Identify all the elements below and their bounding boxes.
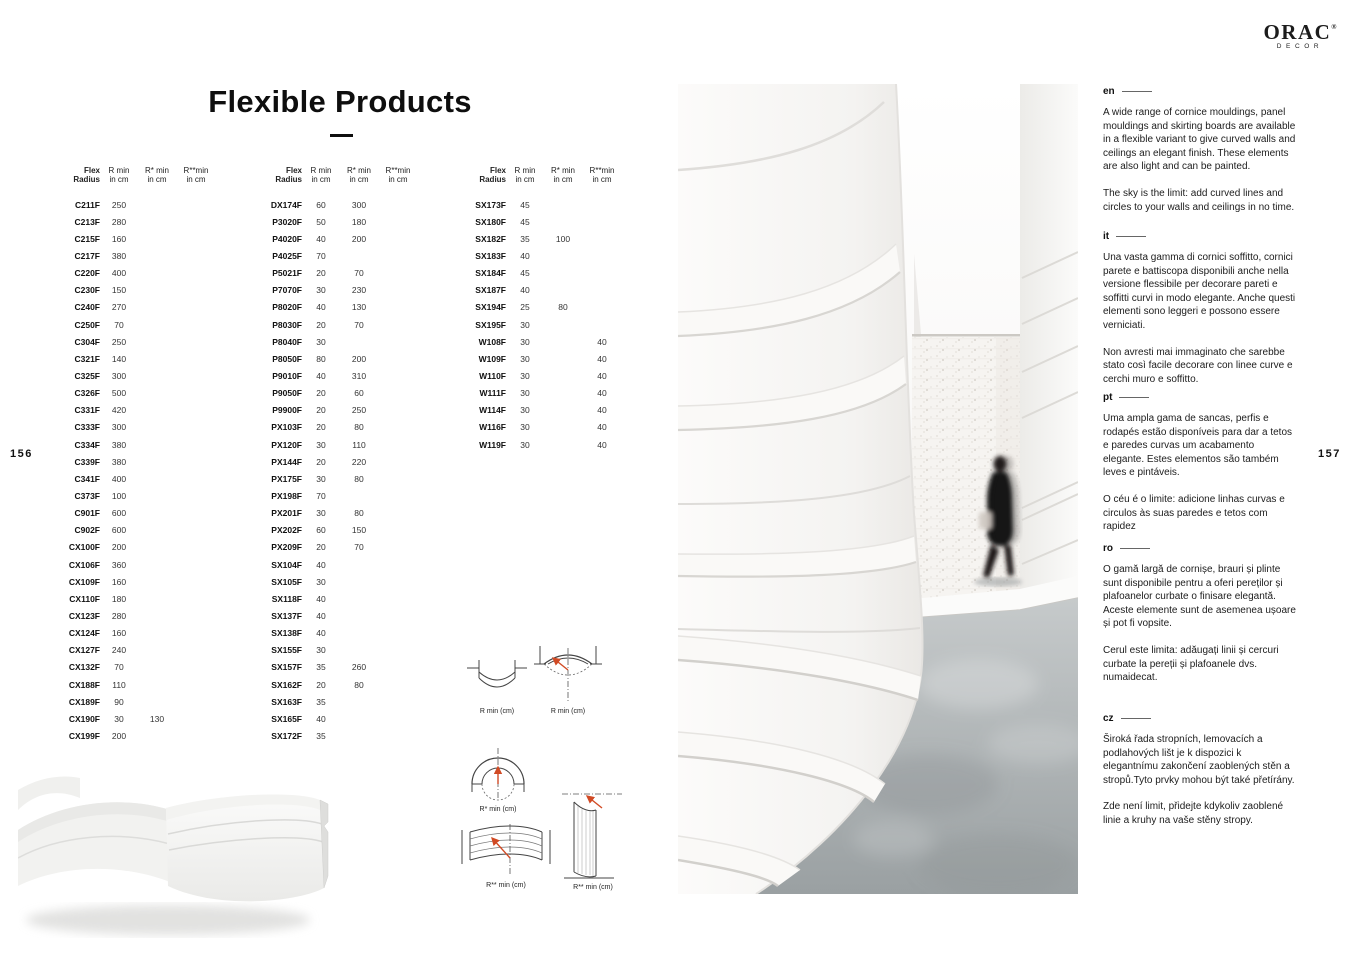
product-code: P8050F — [258, 354, 302, 364]
product-code: SX187F — [462, 285, 506, 295]
lang-code: cz — [1103, 713, 1114, 724]
diagram-r1-min-arch: R* min (cm) — [465, 740, 531, 813]
table-row: C325F300 — [56, 367, 216, 384]
radius-value: 40 — [582, 354, 622, 364]
product-code: CX124F — [56, 628, 100, 638]
flexible-skirting-render — [18, 768, 330, 956]
radius-value: 20 — [302, 268, 340, 278]
table-row: C215F160 — [56, 230, 216, 247]
table-row: SX182F35100 — [462, 230, 622, 247]
radius-value: 40 — [506, 285, 544, 295]
table-row: P8040F30 — [258, 333, 418, 350]
lang-code: pt — [1103, 392, 1112, 403]
table-row: SX183F40 — [462, 247, 622, 264]
radius-value: 40 — [302, 371, 340, 381]
table-row: C304F250 — [56, 333, 216, 350]
product-code: C334F — [56, 440, 100, 450]
table-row: SX184F45 — [462, 265, 622, 282]
radius-value: 200 — [100, 542, 138, 552]
lang-rule — [1121, 718, 1151, 719]
product-code: CX132F — [56, 662, 100, 672]
radius-value: 80 — [340, 474, 378, 484]
col-flex-radius: Flex Radius — [258, 166, 302, 184]
radius-value: 20 — [302, 680, 340, 690]
table-row: SX118F40 — [258, 590, 418, 607]
table-row: CX127F240 — [56, 642, 216, 659]
product-code: SX157F — [258, 662, 302, 672]
radius-value: 200 — [340, 234, 378, 244]
diagram-label: R** min (cm) — [558, 884, 628, 891]
radius-value: 300 — [100, 371, 138, 381]
table-row: CX190F30130 — [56, 710, 216, 727]
table-body: C211F250C213F280C215F160C217F380C220F400… — [56, 196, 216, 745]
product-code: C326F — [56, 388, 100, 398]
lang-paragraph: A wide range of cornice mouldings, panel… — [1103, 106, 1297, 174]
product-code: PX201F — [258, 508, 302, 518]
diagram-r-min-concave: R min (cm) — [462, 660, 532, 715]
radius-value: 40 — [582, 422, 622, 432]
col-r-min: R minin cm — [506, 166, 544, 184]
table-row: DX174F60300 — [258, 196, 418, 213]
product-code: C339F — [56, 457, 100, 467]
radius-value: 30 — [506, 405, 544, 415]
radius-value: 40 — [506, 251, 544, 261]
table-header: Flex Radius R minin cm R* minin cm R**mi… — [462, 166, 622, 196]
table-row: W108F3040 — [462, 333, 622, 350]
product-code: PX144F — [258, 457, 302, 467]
radius-value: 400 — [100, 474, 138, 484]
brand-logo: ORAC® DECOR — [1256, 16, 1344, 50]
table-row: C902F600 — [56, 522, 216, 539]
product-code: CX109F — [56, 577, 100, 587]
table-row: P9010F40310 — [258, 367, 418, 384]
radius-value: 40 — [582, 388, 622, 398]
product-code: CX127F — [56, 645, 100, 655]
radius-value: 35 — [302, 662, 340, 672]
product-code: PX209F — [258, 542, 302, 552]
table-row: P9900F20250 — [258, 402, 418, 419]
table-row: PX209F2070 — [258, 539, 418, 556]
product-code: SX118F — [258, 594, 302, 604]
lang-rule — [1122, 91, 1152, 92]
product-code: SX165F — [258, 714, 302, 724]
radius-value: 70 — [302, 491, 340, 501]
radius-value: 30 — [302, 474, 340, 484]
brand-sub: DECOR — [1256, 43, 1344, 50]
radius-value: 130 — [340, 302, 378, 312]
lang-section-en: en A wide range of cornice mouldings, pa… — [1103, 86, 1297, 227]
product-photo-flexible-skirting — [18, 768, 330, 956]
product-code: P9900F — [258, 405, 302, 415]
radius-value: 30 — [506, 440, 544, 450]
product-code: W116F — [462, 422, 506, 432]
radius-value: 200 — [340, 354, 378, 364]
diagram-label: R min (cm) — [532, 708, 604, 715]
radius-value: 30 — [100, 714, 138, 724]
radius-value: 30 — [302, 645, 340, 655]
table-row: SX195F30 — [462, 316, 622, 333]
table-row: C230F150 — [56, 282, 216, 299]
radius-value: 180 — [340, 217, 378, 227]
lang-rule — [1120, 548, 1150, 549]
lang-code: ro — [1103, 543, 1113, 554]
radius-value: 80 — [340, 508, 378, 518]
table-row: W114F3040 — [462, 402, 622, 419]
radius-value: 260 — [340, 662, 378, 672]
product-code: P9010F — [258, 371, 302, 381]
product-code: SX155F — [258, 645, 302, 655]
product-code: SX173F — [462, 200, 506, 210]
lang-paragraph: The sky is the limit: add curved lines a… — [1103, 187, 1297, 214]
diagram-label: R min (cm) — [462, 708, 532, 715]
col-r1-min: R* minin cm — [138, 166, 176, 184]
lang-paragraph: Cerul este limita: adăugați linii și cer… — [1103, 644, 1297, 685]
product-code: DX174F — [258, 200, 302, 210]
col-flex-radius: Flex Radius — [462, 166, 506, 184]
radius-value: 300 — [100, 422, 138, 432]
product-code: SX104F — [258, 560, 302, 570]
radius-value: 40 — [582, 337, 622, 347]
radius-value: 40 — [302, 611, 340, 621]
product-code: P7070F — [258, 285, 302, 295]
lang-code: en — [1103, 86, 1115, 97]
radius-value: 35 — [506, 234, 544, 244]
col-r2-min: R**minin cm — [176, 166, 216, 184]
radius-value: 200 — [100, 731, 138, 741]
radius-value: 90 — [100, 697, 138, 707]
radius-value: 100 — [100, 491, 138, 501]
table-row: SX163F35 — [258, 693, 418, 710]
col-r-min: R minin cm — [100, 166, 138, 184]
radius-value: 35 — [302, 697, 340, 707]
radius-value: 40 — [582, 371, 622, 381]
flex-radius-table-3: Flex Radius R minin cm R* minin cm R**mi… — [462, 166, 622, 453]
table-row: PX198F70 — [258, 487, 418, 504]
radius-value: 40 — [302, 302, 340, 312]
table-row: C240F270 — [56, 299, 216, 316]
table-row: PX202F60150 — [258, 522, 418, 539]
radius-value: 160 — [100, 628, 138, 638]
table-row: PX201F3080 — [258, 505, 418, 522]
table-row: SX194F2580 — [462, 299, 622, 316]
radius-value: 80 — [302, 354, 340, 364]
radius-value: 30 — [506, 354, 544, 364]
radius-value: 60 — [302, 525, 340, 535]
product-code: SX184F — [462, 268, 506, 278]
radius-value: 140 — [100, 354, 138, 364]
product-code: SX182F — [462, 234, 506, 244]
page-number-right: 157 — [1318, 448, 1341, 460]
radius-value: 40 — [302, 594, 340, 604]
product-code: W108F — [462, 337, 506, 347]
col-r1-min: R* minin cm — [340, 166, 378, 184]
product-code: C211F — [56, 200, 100, 210]
table-row: P9050F2060 — [258, 385, 418, 402]
radius-value: 45 — [506, 217, 544, 227]
product-code: P4025F — [258, 251, 302, 261]
table-row: SX105F30 — [258, 573, 418, 590]
table-row: C331F420 — [56, 402, 216, 419]
radius-value: 70 — [100, 320, 138, 330]
col-r1-min: R* minin cm — [544, 166, 582, 184]
radius-value: 180 — [100, 594, 138, 604]
table-row: C321F140 — [56, 350, 216, 367]
product-code: P3020F — [258, 217, 302, 227]
radius-value: 60 — [302, 200, 340, 210]
radius-value: 160 — [100, 234, 138, 244]
table-row: W109F3040 — [462, 350, 622, 367]
product-code: SX105F — [258, 577, 302, 587]
lang-paragraph: Zde není limit, přidejte kdykoliv zaoble… — [1103, 800, 1297, 827]
radius-value: 60 — [340, 388, 378, 398]
product-code: C325F — [56, 371, 100, 381]
table-row: W111F3040 — [462, 385, 622, 402]
table-row: PX103F2080 — [258, 419, 418, 436]
radius-value: 45 — [506, 200, 544, 210]
radius-value: 380 — [100, 440, 138, 450]
radius-value: 70 — [340, 268, 378, 278]
table-row: CX124F160 — [56, 625, 216, 642]
radius-value: 45 — [506, 268, 544, 278]
product-code: P8020F — [258, 302, 302, 312]
table-row: C333F300 — [56, 419, 216, 436]
radius-value: 80 — [340, 680, 378, 690]
product-code: P9050F — [258, 388, 302, 398]
product-code: C213F — [56, 217, 100, 227]
product-code: PX202F — [258, 525, 302, 535]
product-code: SX137F — [258, 611, 302, 621]
table-row: CX109F160 — [56, 573, 216, 590]
radius-value: 30 — [302, 508, 340, 518]
diagram-r2-min-vertical: R** min (cm) — [558, 782, 628, 891]
radius-value: 30 — [302, 440, 340, 450]
table-row: CX188F110 — [56, 676, 216, 693]
product-code: SX180F — [462, 217, 506, 227]
table-row: SX162F2080 — [258, 676, 418, 693]
radius-value: 30 — [506, 337, 544, 347]
product-code: P4020F — [258, 234, 302, 244]
radius-value: 230 — [340, 285, 378, 295]
table-row: C341F400 — [56, 470, 216, 487]
radius-value: 30 — [506, 320, 544, 330]
page-title: Flexible Products — [170, 84, 510, 120]
table-row: PX144F20220 — [258, 453, 418, 470]
table-row: C339F380 — [56, 453, 216, 470]
product-code: SX163F — [258, 697, 302, 707]
product-code: C321F — [56, 354, 100, 364]
table-row: CX123F280 — [56, 607, 216, 624]
table-row: CX199F200 — [56, 727, 216, 744]
diagram-r-min-convex: R min (cm) — [532, 646, 604, 715]
radius-value: 70 — [302, 251, 340, 261]
radius-value: 40 — [302, 234, 340, 244]
table-row: SX180F45 — [462, 213, 622, 230]
radius-value: 40 — [302, 628, 340, 638]
table-row: SX165F40 — [258, 710, 418, 727]
radius-value: 50 — [302, 217, 340, 227]
product-code: PX175F — [258, 474, 302, 484]
table-row: P8030F2070 — [258, 316, 418, 333]
hallway-photo-svg — [678, 84, 1078, 894]
col-flex-radius: Flex Radius — [56, 166, 100, 184]
lang-paragraph: Una vasta gamma di cornici soffitto, cor… — [1103, 251, 1297, 333]
radius-value: 80 — [340, 422, 378, 432]
product-code: W119F — [462, 440, 506, 450]
col-r-min: R minin cm — [302, 166, 340, 184]
radius-value: 20 — [302, 422, 340, 432]
product-code: C230F — [56, 285, 100, 295]
product-code: SX138F — [258, 628, 302, 638]
table-row: C217F380 — [56, 247, 216, 264]
product-code: C217F — [56, 251, 100, 261]
product-code: C333F — [56, 422, 100, 432]
person-shadow — [974, 578, 1022, 587]
radius-value: 160 — [100, 577, 138, 587]
radius-value: 280 — [100, 611, 138, 621]
radius-value: 20 — [302, 320, 340, 330]
product-code: CX199F — [56, 731, 100, 741]
radius-value: 70 — [340, 320, 378, 330]
lang-section-pt: pt Uma ampla gama de sancas, perfis e ro… — [1103, 392, 1297, 547]
lang-paragraph: Široká řada stropních, lemovacích a podl… — [1103, 733, 1297, 787]
lang-paragraph: Uma ampla gama de sancas, perfis e rodap… — [1103, 412, 1297, 480]
product-code: W110F — [462, 371, 506, 381]
radius-value: 70 — [100, 662, 138, 672]
lang-section-it: it Una vasta gamma di cornici soffitto, … — [1103, 231, 1297, 399]
product-code: SX172F — [258, 731, 302, 741]
radius-value: 40 — [582, 440, 622, 450]
table-row: W110F3040 — [462, 367, 622, 384]
radius-value: 80 — [544, 302, 582, 312]
table-row: SX155F30 — [258, 642, 418, 659]
table-row: CX106F360 — [56, 556, 216, 573]
radius-value: 70 — [340, 542, 378, 552]
radius-value: 250 — [100, 200, 138, 210]
radius-value: 30 — [302, 285, 340, 295]
product-code: C220F — [56, 268, 100, 278]
lang-section-ro: ro O gamă largă de cornișe, brauri și pl… — [1103, 543, 1297, 698]
lang-paragraph: O gamă largă de cornișe, brauri și plint… — [1103, 563, 1297, 631]
product-code: C373F — [56, 491, 100, 501]
radius-value: 310 — [340, 371, 378, 381]
radius-value: 270 — [100, 302, 138, 312]
product-code: SX162F — [258, 680, 302, 690]
table-row: SX157F35260 — [258, 659, 418, 676]
table-row: CX110F180 — [56, 590, 216, 607]
product-code: C331F — [56, 405, 100, 415]
table-row: PX175F3080 — [258, 470, 418, 487]
product-code: P8030F — [258, 320, 302, 330]
product-code: SX195F — [462, 320, 506, 330]
flex-radius-table-2: Flex Radius R minin cm R* minin cm R**mi… — [258, 166, 418, 745]
product-code: C240F — [56, 302, 100, 312]
radius-value: 30 — [506, 388, 544, 398]
table-row: P7070F30230 — [258, 282, 418, 299]
table-row: P4025F70 — [258, 247, 418, 264]
radius-value: 380 — [100, 251, 138, 261]
product-code: SX183F — [462, 251, 506, 261]
product-code: CX123F — [56, 611, 100, 621]
product-code: SX194F — [462, 302, 506, 312]
radius-value: 35 — [302, 731, 340, 741]
hallway-photo — [678, 84, 1078, 894]
diagram-label: R* min (cm) — [465, 806, 531, 813]
product-code: CX106F — [56, 560, 100, 570]
table-row: CX132F70 — [56, 659, 216, 676]
diagram-label: R** min (cm) — [458, 882, 554, 889]
lang-paragraph: Non avresti mai immaginato che sarebbe s… — [1103, 346, 1297, 387]
product-code: W114F — [462, 405, 506, 415]
table-row: C211F250 — [56, 196, 216, 213]
radius-value: 40 — [302, 714, 340, 724]
table-row: P8050F80200 — [258, 350, 418, 367]
flex-radius-table-1: Flex Radius R minin cm R* minin cm R**mi… — [56, 166, 216, 745]
product-code: PX198F — [258, 491, 302, 501]
radius-value: 150 — [100, 285, 138, 295]
product-code: P5021F — [258, 268, 302, 278]
radius-value: 250 — [340, 405, 378, 415]
product-code: CX100F — [56, 542, 100, 552]
lang-rule — [1116, 236, 1146, 237]
product-code: C250F — [56, 320, 100, 330]
table-row: PX120F30110 — [258, 436, 418, 453]
product-code: C902F — [56, 525, 100, 535]
table-row: SX137F40 — [258, 607, 418, 624]
lang-rule — [1119, 397, 1149, 398]
table-row: C220F400 — [56, 265, 216, 282]
table-row: SX187F40 — [462, 282, 622, 299]
radius-value: 110 — [340, 440, 378, 450]
radius-value: 100 — [544, 234, 582, 244]
radius-value: 600 — [100, 525, 138, 535]
radius-value: 500 — [100, 388, 138, 398]
table-row: W119F3040 — [462, 436, 622, 453]
table-row: P8020F40130 — [258, 299, 418, 316]
radius-value: 20 — [302, 388, 340, 398]
table-header: Flex Radius R minin cm R* minin cm R**mi… — [56, 166, 216, 196]
col-r2-min: R**minin cm — [378, 166, 418, 184]
table-row: CX189F90 — [56, 693, 216, 710]
lang-section-cz: cz Široká řada stropních, lemovacích a p… — [1103, 713, 1297, 841]
radius-value: 20 — [302, 542, 340, 552]
brand-name: ORAC® — [1256, 16, 1344, 43]
table-row: C373F100 — [56, 487, 216, 504]
table-row: C250F70 — [56, 316, 216, 333]
table-body: DX174F60300P3020F50180P4020F40200P4025F7… — [258, 196, 418, 745]
radius-value: 30 — [302, 577, 340, 587]
radius-value: 300 — [340, 200, 378, 210]
table-row: P5021F2070 — [258, 265, 418, 282]
table-row: C213F280 — [56, 213, 216, 230]
table-row: C901F600 — [56, 505, 216, 522]
title-underline — [330, 134, 353, 137]
radius-value: 20 — [302, 405, 340, 415]
product-code: C304F — [56, 337, 100, 347]
table-row: P3020F50180 — [258, 213, 418, 230]
table-row: SX104F40 — [258, 556, 418, 573]
radius-value: 30 — [506, 371, 544, 381]
radius-value: 220 — [340, 457, 378, 467]
product-code: P8040F — [258, 337, 302, 347]
table-body: SX173F45SX180F45SX182F35100SX183F40SX184… — [462, 196, 622, 453]
table-row: P4020F40200 — [258, 230, 418, 247]
product-code: C901F — [56, 508, 100, 518]
radius-value: 360 — [100, 560, 138, 570]
product-code: CX189F — [56, 697, 100, 707]
table-row: C334F380 — [56, 436, 216, 453]
radius-value: 240 — [100, 645, 138, 655]
product-code: C215F — [56, 234, 100, 244]
